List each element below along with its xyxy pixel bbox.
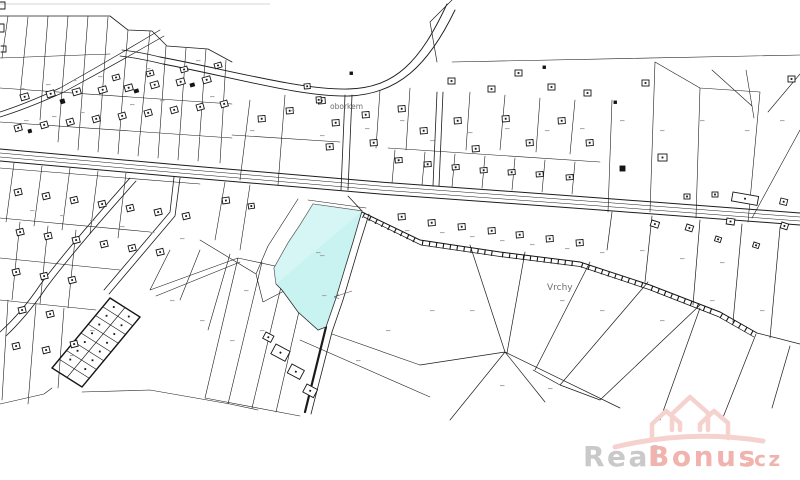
hatched-track (362, 212, 757, 337)
watermark-brand-secondary: Bonus (648, 440, 758, 473)
allotment-strip (52, 298, 140, 387)
parcel-lines-layer (0, 0, 800, 420)
cadastral-map[interactable]: oborkem Vrchy Real Bonus .cz (0, 0, 800, 480)
street-label: oborkem (330, 102, 363, 111)
area-label-vrchy: Vrchy (547, 283, 573, 293)
watermark-tld: .cz (744, 447, 783, 471)
watermark-logo: Real Bonus .cz (583, 397, 783, 473)
map-viewport[interactable]: oborkem Vrchy Real Bonus .cz (0, 0, 800, 480)
highlighted-parcel[interactable] (274, 204, 362, 330)
